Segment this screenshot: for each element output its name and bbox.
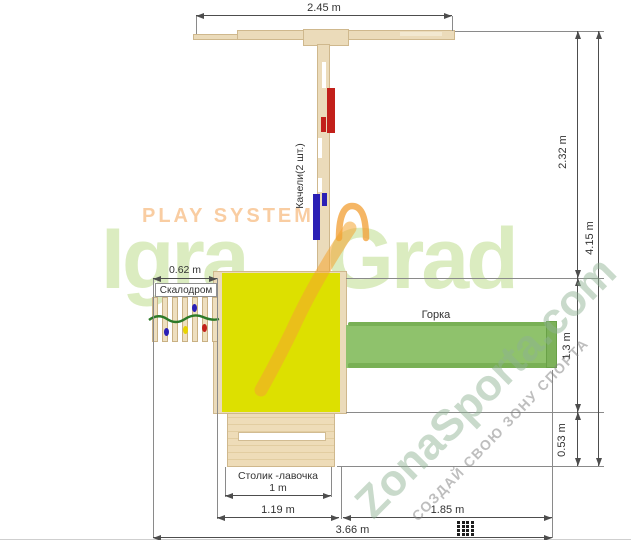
dim-line-platform-depth xyxy=(577,278,578,412)
beam-notch xyxy=(400,32,442,36)
climbing-wall-slat xyxy=(182,297,188,342)
slide-end-cap xyxy=(546,321,557,368)
climbing-wall-slat xyxy=(202,297,208,342)
beam-left-board xyxy=(193,34,239,40)
slide-label: Горка xyxy=(396,309,476,321)
dim-left-span: 1.19 m xyxy=(217,504,339,516)
swing-seat-red xyxy=(327,88,335,133)
post-slot xyxy=(318,138,322,158)
dim-platform-depth: 1.3 m xyxy=(561,316,573,376)
dim-total-width: 3.66 m xyxy=(153,524,552,536)
climbing-hold xyxy=(164,328,169,336)
slide-bottom-edge xyxy=(348,363,553,368)
dim-table-width: 1 m xyxy=(225,482,331,494)
swing-seat-blue-tab xyxy=(322,193,327,206)
dim-total-height: 4.15 m xyxy=(584,208,596,268)
grad-logo-text: Grad xyxy=(327,216,516,302)
extension-line xyxy=(455,31,604,32)
extension-line xyxy=(217,278,218,519)
dim-line-climb xyxy=(153,278,217,279)
climbing-hold xyxy=(202,324,207,332)
dim-bench-depth: 0.53 m xyxy=(556,410,568,470)
swing-seat-red-tab xyxy=(321,117,326,132)
post-slot xyxy=(318,178,322,192)
dim-line-upper-height xyxy=(577,31,578,278)
slide-top-edge xyxy=(348,322,553,326)
extension-line xyxy=(346,278,604,279)
dim-line-table xyxy=(225,495,331,496)
extension-line xyxy=(196,16,197,34)
dim-climb-width: 0.62 m xyxy=(153,264,217,276)
post-slot xyxy=(322,62,326,88)
platform-roof xyxy=(222,273,340,412)
extension-line xyxy=(153,278,154,537)
dim-upper-height: 2.32 m xyxy=(557,122,569,182)
extension-line xyxy=(341,467,342,519)
dim-line-left-span xyxy=(217,517,339,518)
dim-beam-span: 2.45 m xyxy=(196,2,452,14)
table-slot xyxy=(238,432,326,441)
dots-grid xyxy=(457,521,474,536)
climbing-wall-label: Скалодром xyxy=(155,283,217,297)
climbing-wall xyxy=(152,297,218,342)
dim-line-beam xyxy=(196,15,452,16)
extension-line xyxy=(331,467,332,497)
climbing-hold xyxy=(192,304,197,312)
slide-body xyxy=(346,325,557,368)
playground-plan-drawing: PLAY SYSTEM Igra Grad Качели(2 шт.) Скал… xyxy=(0,0,631,540)
extension-line xyxy=(552,370,553,538)
extension-line xyxy=(452,16,453,31)
dim-line-total-width xyxy=(153,537,552,538)
dim-slide-span: 1.85 m xyxy=(343,504,552,516)
climbing-wall-slat xyxy=(172,297,178,342)
dim-line-total-height xyxy=(598,31,599,466)
swing-seat-blue xyxy=(313,194,320,240)
dim-line-slide-span xyxy=(343,517,552,518)
swings-label: Качели(2 шт.) xyxy=(294,126,306,226)
dim-line-bench-depth xyxy=(577,412,578,466)
table-bench-label: Столик -лавочка xyxy=(225,470,331,482)
climbing-hold xyxy=(183,326,188,334)
